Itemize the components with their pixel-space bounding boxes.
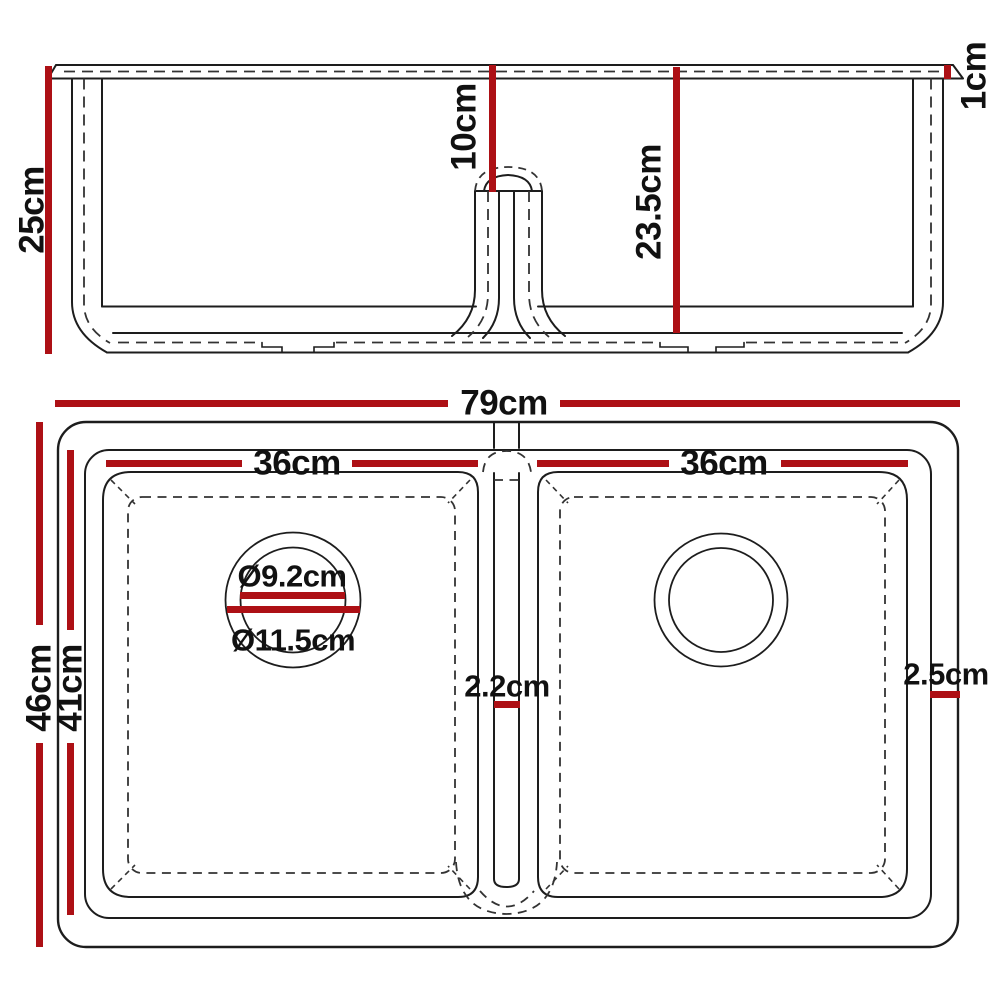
dim-bar-right-bowl-width-b xyxy=(781,460,908,467)
center-divider-elevation xyxy=(452,175,565,338)
divider-slot xyxy=(494,423,519,887)
dim-label-rim-border-width: 2.5cm xyxy=(903,657,988,692)
divider-top-dome xyxy=(483,451,531,480)
dim-bar-bowl-depth xyxy=(673,67,680,333)
dim-bar-drain-hole-diameter xyxy=(240,592,345,599)
divider-hidden-lines xyxy=(468,191,549,337)
elevation-view: 25cm 10cm 23.5cm 1cm xyxy=(13,42,994,354)
dim-label-right-bowl-width: 36cm xyxy=(680,444,768,483)
plan-view: 79cm 36cm 36cm 46cm 41cm Ø9.2cm Ø11.5cm … xyxy=(20,384,989,948)
dim-label-overall-height: 25cm xyxy=(13,166,52,254)
dim-label-rim-thickness: 1cm xyxy=(955,42,994,111)
dim-bar-bowl-depth-b xyxy=(67,743,74,915)
dim-bar-overall-depth-b xyxy=(36,743,43,947)
dim-bar-divider-height xyxy=(489,65,496,192)
bottom-lines xyxy=(102,307,913,353)
dim-bar-right-bowl-width-a xyxy=(537,460,669,467)
right-bowl-edge xyxy=(538,472,907,897)
diagram-canvas: 25cm 10cm 23.5cm 1cm xyxy=(0,0,1000,1000)
dim-bar-overall-width-right xyxy=(560,400,960,407)
dim-label-bowl-depth: 23.5cm xyxy=(630,144,669,260)
dim-bar-overall-width-left xyxy=(55,400,448,407)
dim-bar-overall-depth-a xyxy=(36,422,43,625)
dim-bar-rim-border-width xyxy=(930,691,960,698)
dim-bar-divider-thickness xyxy=(494,701,520,708)
drain-bosses xyxy=(262,343,744,353)
sink-outline-elevation xyxy=(48,65,963,353)
dim-bar-drain-recess-diameter xyxy=(227,606,360,613)
dim-label-drain-hole-diameter: Ø9.2cm xyxy=(237,559,346,594)
dim-bar-rim-thickness xyxy=(944,65,951,79)
dimension-annotations-plan: 79cm 36cm 36cm 46cm 41cm Ø9.2cm Ø11.5cm … xyxy=(20,384,989,948)
dim-label-left-bowl-width: 36cm xyxy=(253,444,341,483)
right-drain-hole xyxy=(669,548,773,652)
dim-label-overall-width: 79cm xyxy=(460,384,548,423)
sink-hidden-lines-elevation xyxy=(64,72,948,344)
wall-hidden-lines xyxy=(84,79,931,344)
dim-bar-bowl-depth-a xyxy=(67,450,74,630)
dim-label-divider-thickness: 2.2cm xyxy=(464,669,549,704)
dim-label-bowl-depth: 41cm xyxy=(51,644,90,732)
side-walls xyxy=(72,79,943,353)
dim-label-divider-height: 10cm xyxy=(445,83,484,171)
sink-dimension-diagram: 25cm 10cm 23.5cm 1cm xyxy=(0,0,1000,1000)
left-bowl-edge xyxy=(103,472,478,897)
dim-bar-left-bowl-width-a xyxy=(106,460,242,467)
dim-label-drain-recess-diameter: Ø11.5cm xyxy=(231,623,355,658)
left-bowl-base-outline xyxy=(128,497,455,873)
right-drain-recess xyxy=(655,534,788,667)
dim-bar-left-bowl-width-b xyxy=(352,460,478,467)
right-bowl-base-outline xyxy=(560,497,885,873)
